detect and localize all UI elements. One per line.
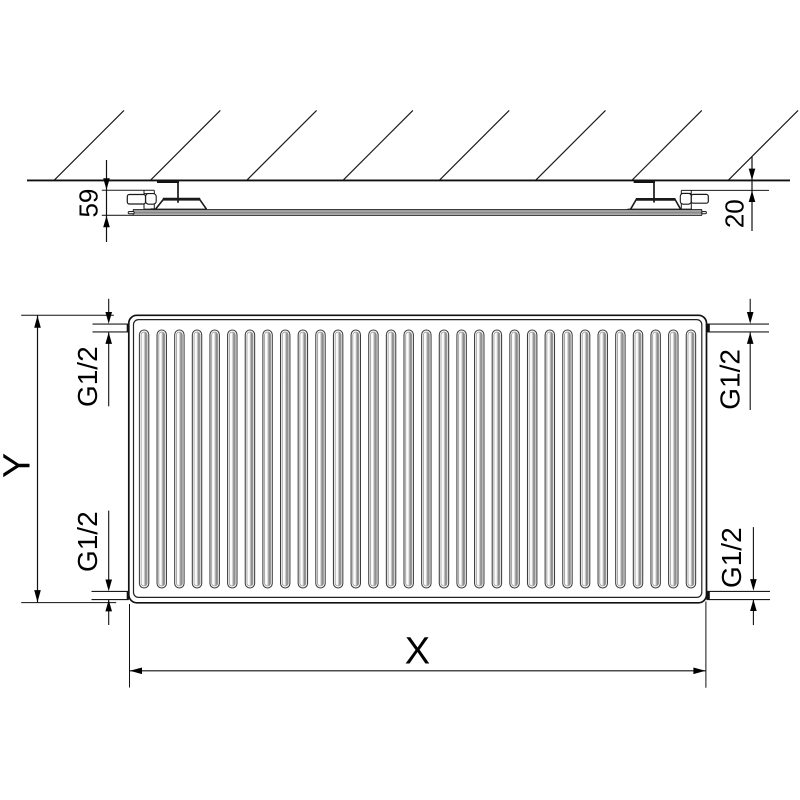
- svg-text:20: 20: [719, 199, 749, 228]
- svg-text:59: 59: [73, 189, 103, 218]
- svg-text:G1/2: G1/2: [72, 346, 103, 407]
- svg-text:G1/2: G1/2: [72, 511, 103, 572]
- svg-text:G1/2: G1/2: [715, 349, 746, 410]
- svg-text:Y: Y: [0, 453, 39, 478]
- svg-text:X: X: [405, 631, 430, 673]
- svg-text:G1/2: G1/2: [716, 527, 747, 588]
